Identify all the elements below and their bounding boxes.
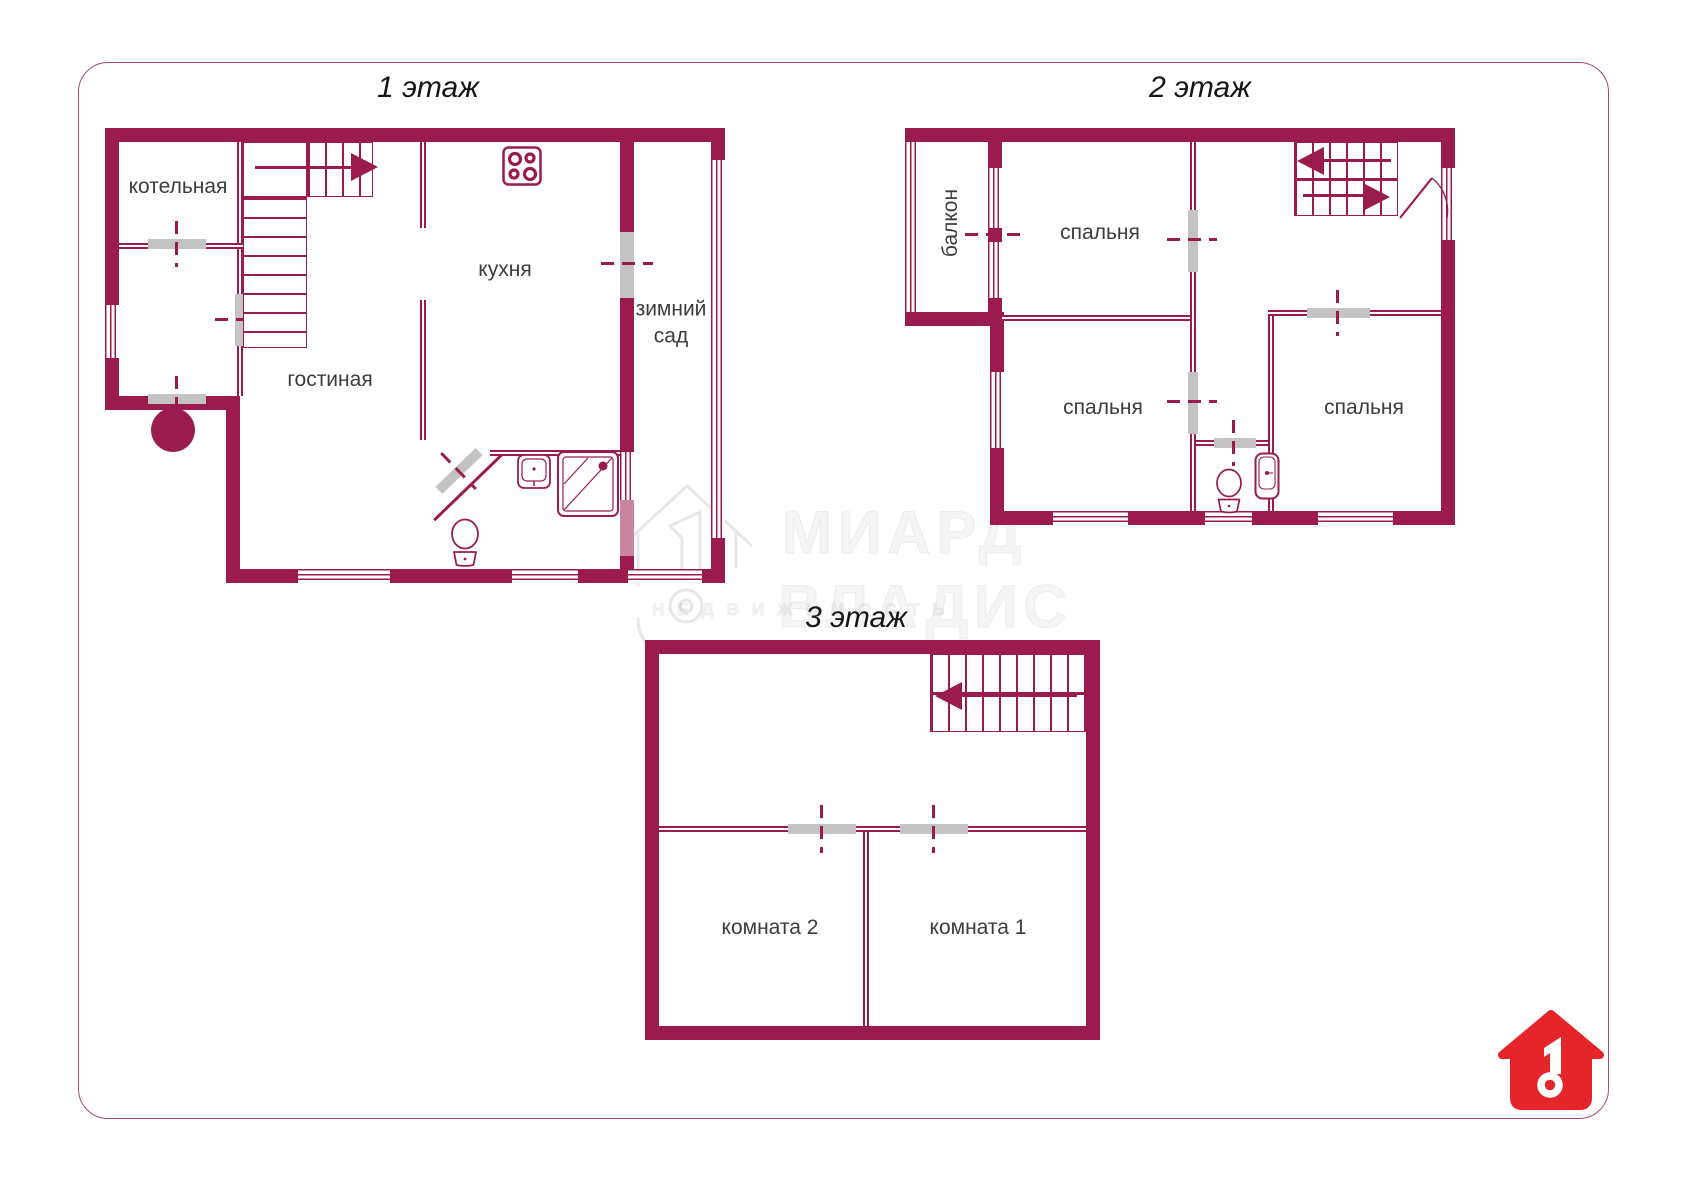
wall — [711, 538, 725, 583]
wall — [105, 128, 119, 410]
door — [1188, 210, 1198, 272]
partition-wall — [1190, 142, 1196, 511]
stairs-direction-line — [255, 166, 359, 169]
shower-icon — [556, 450, 620, 518]
well-icon — [151, 408, 195, 452]
partition-wall — [659, 826, 1086, 832]
wall — [105, 128, 725, 142]
wall — [988, 298, 1002, 312]
door-swing — [1167, 400, 1217, 403]
wall — [645, 640, 1100, 654]
wall — [645, 1026, 1100, 1040]
door-swing — [932, 805, 935, 853]
window — [628, 569, 702, 583]
door-swing — [175, 221, 178, 267]
stairs-direction-line — [1319, 159, 1391, 162]
wall — [226, 410, 240, 583]
door-leaf-arc — [1396, 172, 1450, 220]
balcony-glazing — [905, 142, 918, 312]
wall — [988, 142, 1002, 168]
door-swing — [1232, 420, 1235, 466]
stove-icon — [502, 146, 542, 186]
wall — [620, 298, 634, 452]
wall — [620, 142, 634, 232]
partition-wall — [420, 300, 426, 440]
toilet-icon — [1212, 468, 1246, 514]
wall — [1086, 654, 1100, 1040]
wall — [711, 128, 725, 160]
stairs-direction-line — [1303, 194, 1365, 197]
wall — [905, 312, 1004, 326]
partition-wall — [420, 142, 426, 228]
window — [1053, 511, 1128, 525]
floor2-plan — [905, 128, 1455, 525]
door-swing — [965, 233, 1023, 236]
watermark-over-wall — [620, 500, 634, 556]
floor1-title: 1 этаж — [377, 71, 479, 105]
agency-house-logo — [1494, 1008, 1608, 1112]
door-swing — [820, 805, 823, 853]
floor2-title: 2 этаж — [1149, 71, 1251, 105]
stairs-arrow-icon — [1363, 183, 1390, 211]
stairs-landing — [243, 142, 307, 197]
floor3-title: 3 этаж — [805, 601, 907, 635]
window — [988, 242, 1002, 298]
floor-plan-sheet: 1 этаж 2 этаж 3 этаж МИАРД ВЛАДИС недвиж… — [0, 0, 1686, 1181]
wall — [645, 640, 659, 1040]
door — [1188, 372, 1198, 434]
sink-icon — [516, 453, 552, 493]
door-swing — [1167, 238, 1217, 241]
stairs-direction-line — [959, 694, 1077, 697]
window — [1318, 511, 1393, 525]
partition-wall — [863, 832, 869, 1026]
stairs-arrow-icon — [351, 153, 378, 181]
stairs — [243, 197, 307, 348]
partition-wall — [1002, 315, 1190, 321]
window — [988, 168, 1002, 228]
door-swing — [1336, 290, 1339, 336]
door — [1214, 438, 1256, 448]
wall — [905, 128, 1455, 142]
bathtub-icon — [1254, 452, 1280, 500]
window — [105, 305, 119, 358]
toilet-icon — [447, 518, 483, 568]
window — [512, 569, 578, 583]
stairs-arrow-icon — [935, 682, 962, 710]
door — [620, 232, 634, 298]
window — [298, 569, 390, 583]
door-swing — [601, 262, 653, 265]
window — [711, 160, 725, 538]
window — [990, 372, 1004, 448]
floor3-plan — [645, 640, 1100, 1040]
floor1-plan — [105, 128, 725, 583]
stairs-mid-line — [1294, 178, 1398, 181]
